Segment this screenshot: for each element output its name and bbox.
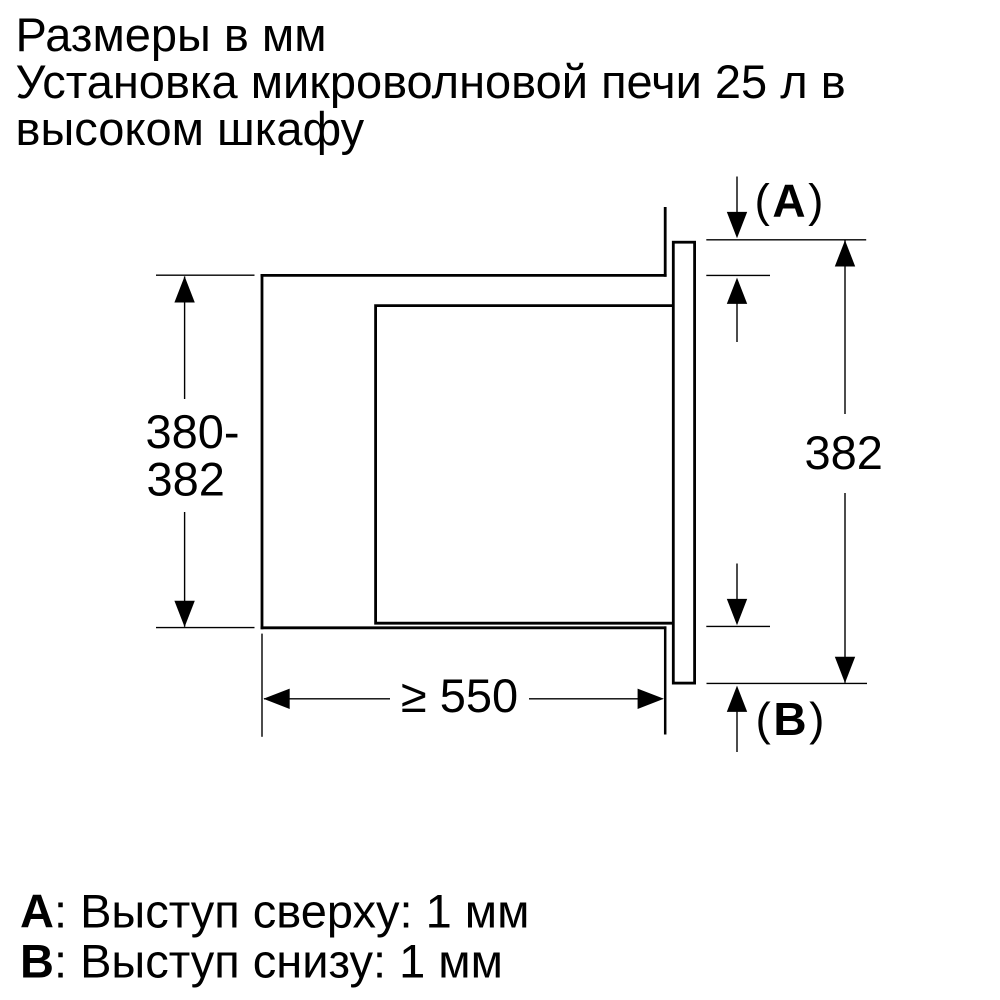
svg-text:высоком шкафу: высоком шкафу	[16, 102, 365, 155]
svg-text:Размеры в мм: Размеры в мм	[16, 8, 327, 61]
svg-text:382: 382	[147, 453, 225, 506]
svg-text:382: 382	[805, 426, 883, 479]
svg-text:(B): (B)	[756, 693, 827, 745]
svg-text:(A): (A)	[755, 175, 826, 227]
svg-text:380-: 380-	[146, 405, 240, 458]
svg-text:A: Выступ сверху: 1 мм: A: Выступ сверху: 1 мм	[20, 885, 529, 938]
svg-text:≥ 550: ≥ 550	[401, 669, 518, 722]
svg-text:B: Выступ снизу: 1 мм: B: Выступ снизу: 1 мм	[20, 935, 503, 988]
svg-text:Установка микроволновой печи 2: Установка микроволновой печи 25 л в	[16, 55, 846, 108]
